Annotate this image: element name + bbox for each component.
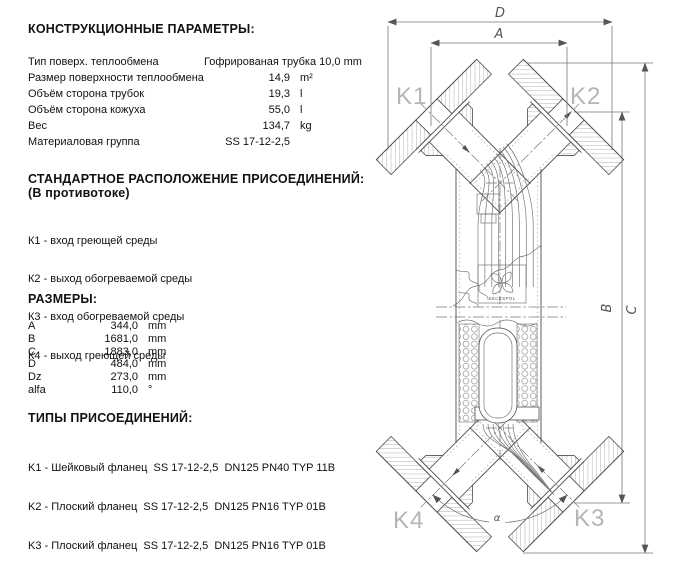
dim-b-label: B: [600, 303, 615, 312]
k4-label: K4: [393, 507, 424, 534]
k2-label: K2: [570, 83, 601, 110]
k1-label: K1: [396, 83, 427, 110]
k3-label: K3: [574, 505, 605, 532]
logo-clover-icon: [491, 272, 513, 294]
technical-drawing: SECESPOL: [0, 0, 700, 569]
dim-c-label: C: [625, 305, 640, 315]
dim-d-label: D: [495, 6, 505, 21]
lower-bundle-section: [457, 320, 539, 423]
dim-a-label: A: [494, 27, 504, 42]
tube-bundle: [478, 144, 533, 287]
angle-label: α: [494, 513, 501, 524]
logo-text: SECESPOL: [489, 296, 516, 301]
datasheet-page: КОНСТРУКЦИОННЫЕ ПАРАМЕТРЫ: Тип поверх. т…: [0, 0, 700, 569]
